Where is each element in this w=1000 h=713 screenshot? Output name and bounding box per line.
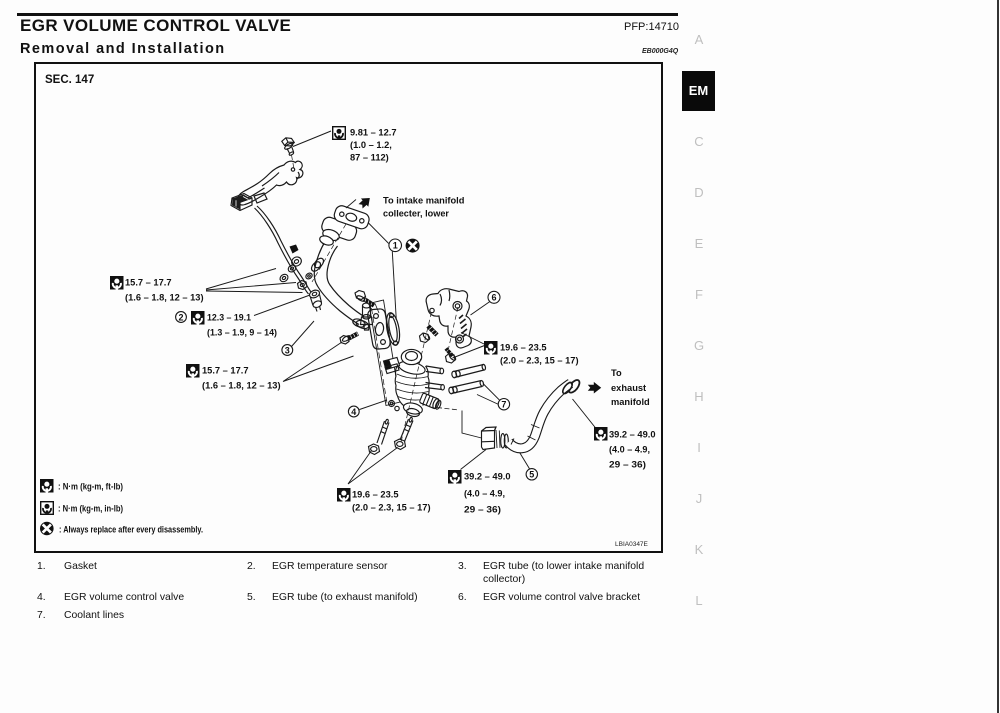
- svg-text:: N·m (kg-m, ft-lb): : N·m (kg-m, ft-lb): [58, 482, 123, 492]
- svg-text:19.6 – 23.5: 19.6 – 23.5: [500, 343, 547, 353]
- svg-text:(1.6 – 1.8, 12 – 13): (1.6 – 1.8, 12 – 13): [202, 381, 281, 391]
- svg-text:4: 4: [351, 407, 356, 417]
- svg-text:: Always replace after every d: : Always replace after every disassembly…: [59, 525, 203, 535]
- svg-text:9.81 – 12.7: 9.81 – 12.7: [350, 128, 397, 138]
- svg-text:39.2 – 49.0: 39.2 – 49.0: [464, 472, 511, 482]
- svg-text:12.3 – 19.1: 12.3 – 19.1: [207, 313, 251, 323]
- svg-text:: N·m (kg-m, in-lb): : N·m (kg-m, in-lb): [58, 504, 123, 514]
- svg-text:3: 3: [285, 345, 290, 355]
- svg-text:(4.0 – 4.9,: (4.0 – 4.9,: [609, 445, 650, 455]
- svg-text:29 – 36): 29 – 36): [609, 460, 646, 470]
- svg-text:2: 2: [178, 312, 183, 322]
- svg-text:5: 5: [529, 470, 534, 480]
- svg-text:15.7 – 17.7: 15.7 – 17.7: [202, 366, 249, 376]
- svg-text:(4.0 – 4.9,: (4.0 – 4.9,: [464, 489, 505, 499]
- svg-text:6: 6: [491, 293, 496, 303]
- svg-text:To intake manifold: To intake manifold: [383, 196, 465, 206]
- svg-text:collecter, lower: collecter, lower: [383, 209, 449, 219]
- svg-text:(1.6 – 1.8, 12 – 13): (1.6 – 1.8, 12 – 13): [125, 293, 204, 303]
- svg-text:(2.0 – 2.3, 15 – 17): (2.0 – 2.3, 15 – 17): [352, 503, 431, 513]
- svg-text:exhaust: exhaust: [611, 383, 646, 393]
- svg-text:7: 7: [501, 400, 506, 410]
- svg-text:15.7 – 17.7: 15.7 – 17.7: [125, 278, 172, 288]
- svg-text:(2.0 – 2.3, 15 – 17): (2.0 – 2.3, 15 – 17): [500, 356, 579, 366]
- svg-text:(1.3 – 1.9, 9 – 14): (1.3 – 1.9, 9 – 14): [207, 328, 277, 338]
- svg-text:19.6 – 23.5: 19.6 – 23.5: [352, 490, 399, 500]
- svg-text:(1.0 – 1.2,: (1.0 – 1.2,: [350, 140, 392, 150]
- svg-text:87 – 112): 87 – 112): [350, 153, 389, 163]
- svg-text:39.2 – 49.0: 39.2 – 49.0: [609, 430, 656, 440]
- svg-text:1: 1: [393, 241, 398, 251]
- svg-text:29 – 36): 29 – 36): [464, 505, 501, 515]
- svg-text:To: To: [611, 368, 622, 378]
- svg-text:manifold: manifold: [611, 397, 650, 407]
